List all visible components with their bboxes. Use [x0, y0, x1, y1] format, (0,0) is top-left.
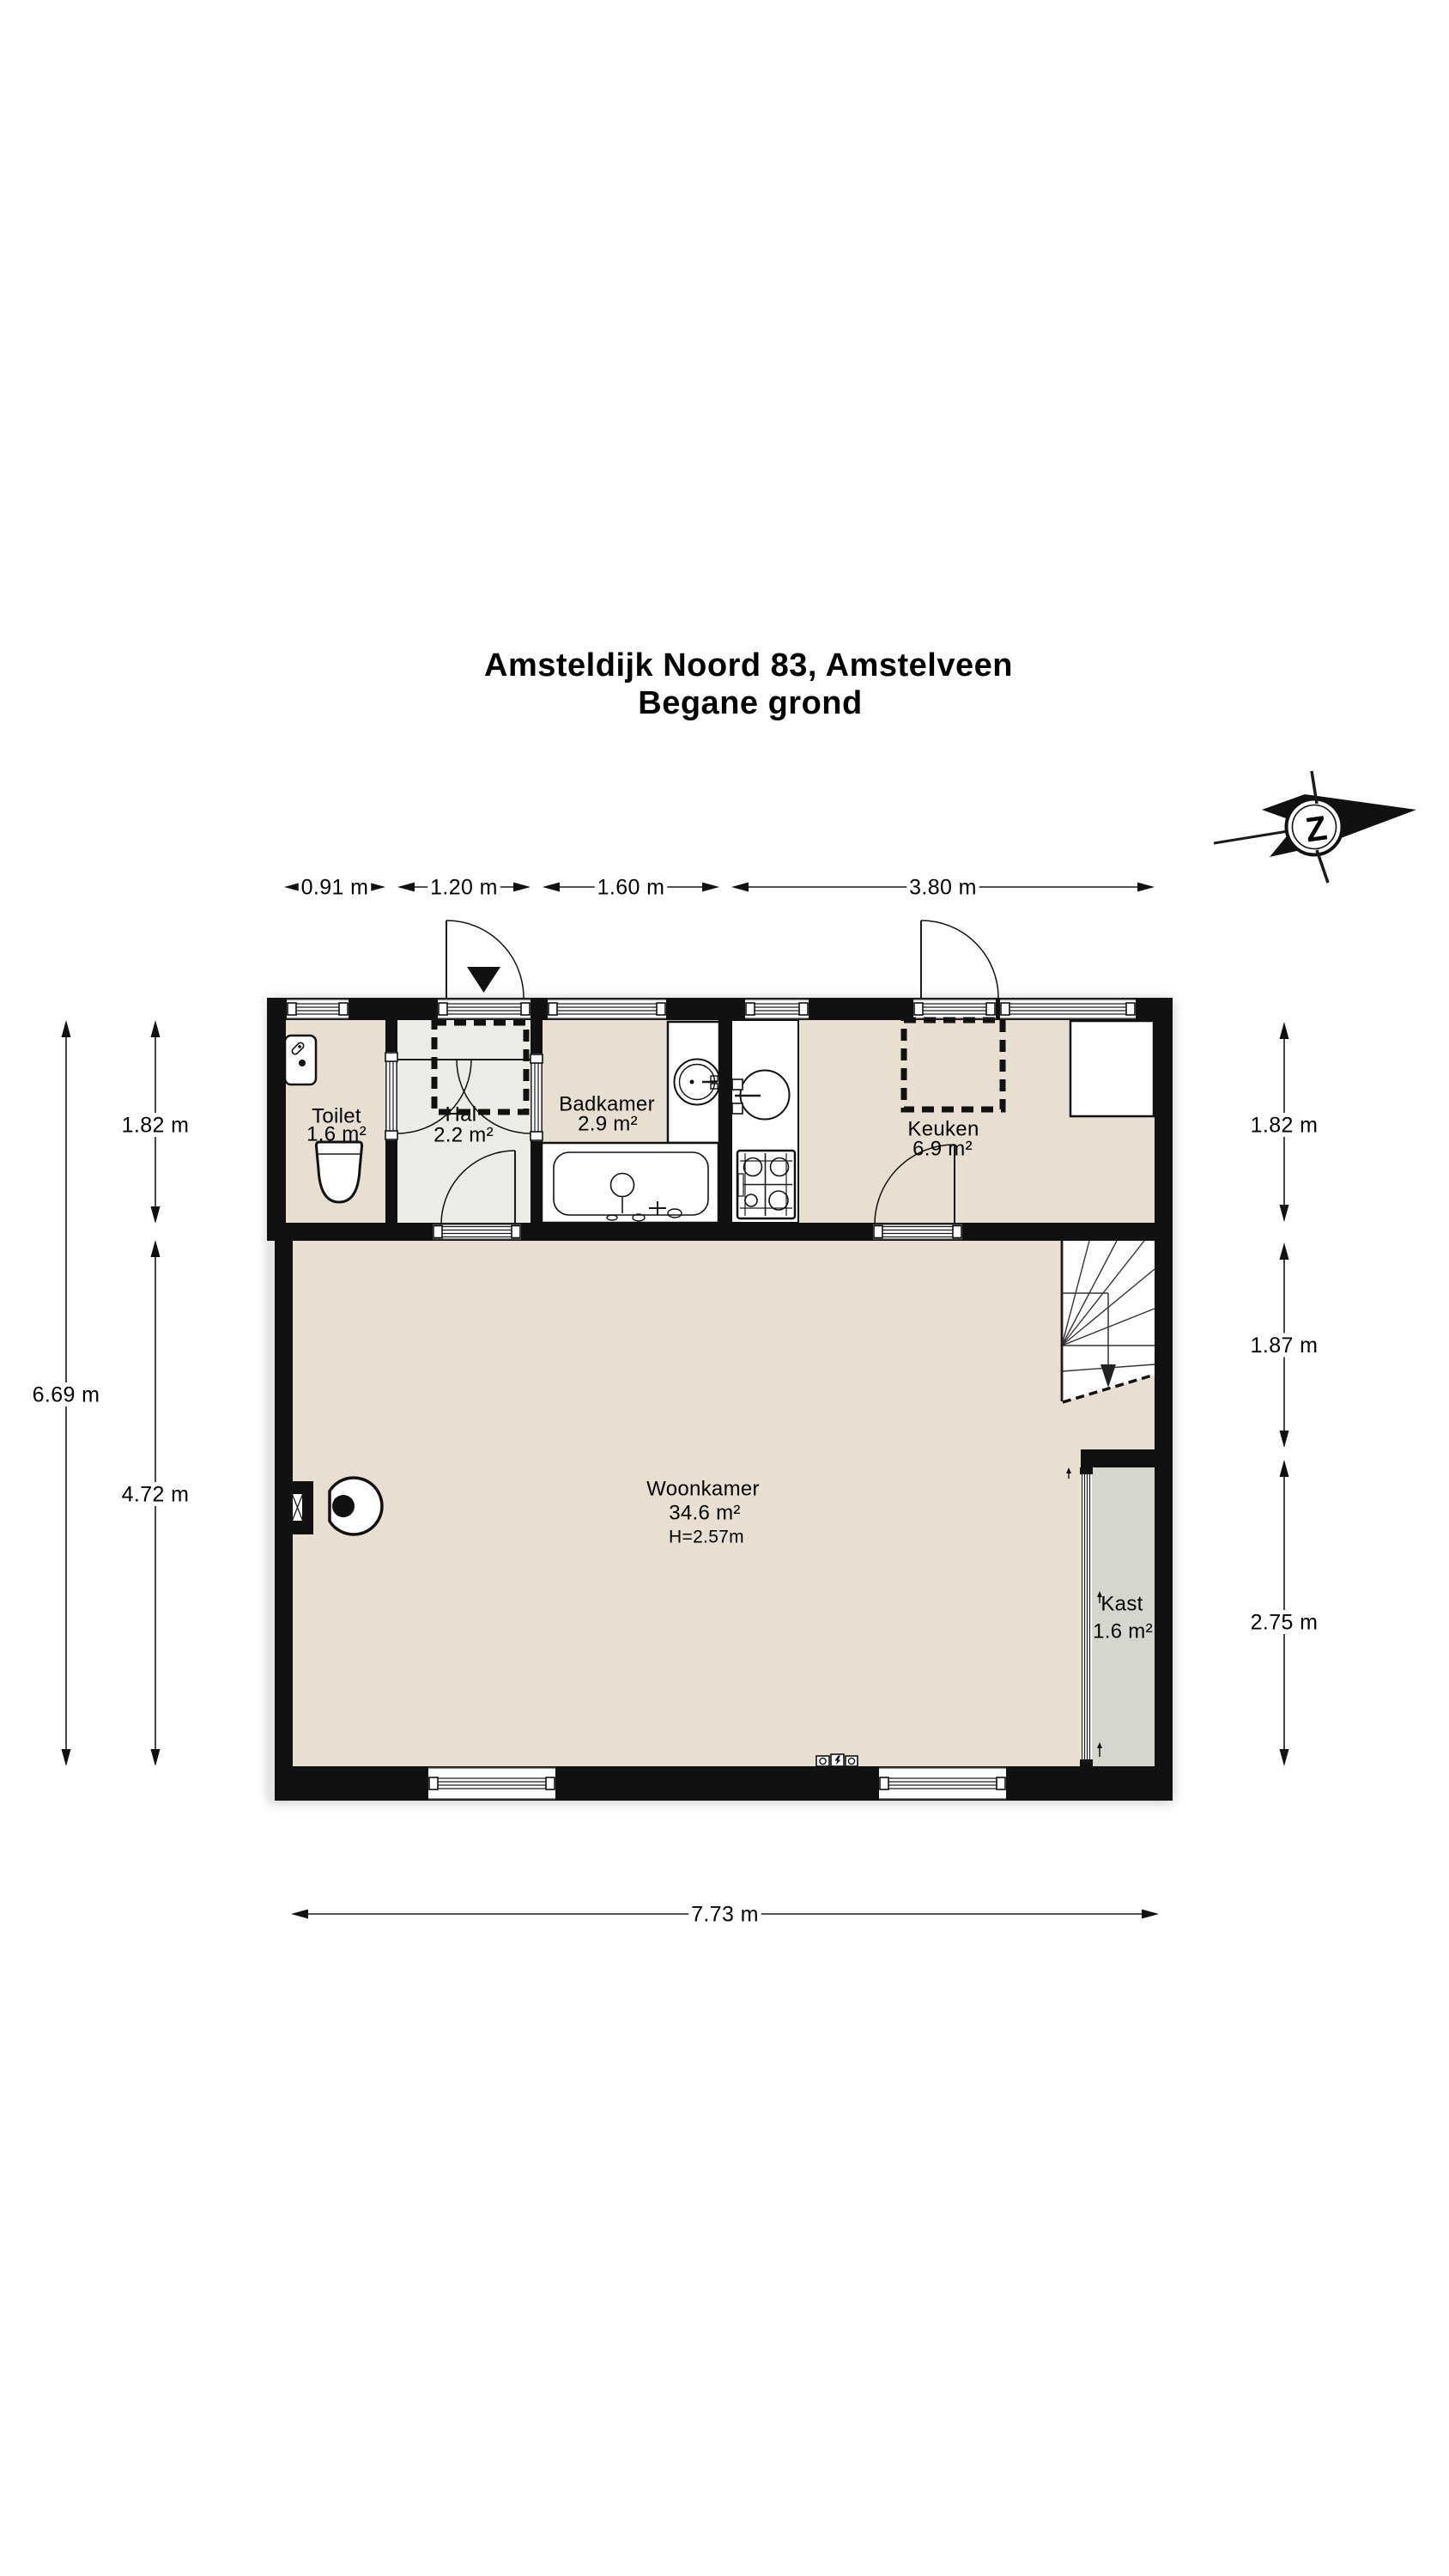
- svg-text:1.82 m: 1.82 m: [1251, 1114, 1319, 1138]
- svg-text:6.9 m²: 6.9 m²: [912, 1138, 973, 1161]
- svg-text:1.20 m: 1.20 m: [430, 876, 498, 900]
- svg-text:4.72 m: 4.72 m: [122, 1483, 190, 1507]
- svg-text:Begane grond: Begane grond: [638, 685, 862, 721]
- svg-text:Kast: Kast: [1100, 1593, 1143, 1616]
- svg-text:6.69 m: 6.69 m: [33, 1383, 100, 1407]
- svg-text:34.6 m²: 34.6 m²: [669, 1502, 740, 1525]
- svg-text:1.82 m: 1.82 m: [122, 1114, 190, 1138]
- svg-text:1.6 m²: 1.6 m²: [306, 1123, 367, 1146]
- svg-text:1.6 m²: 1.6 m²: [1093, 1620, 1153, 1643]
- svg-text:2.75 m: 2.75 m: [1251, 1611, 1319, 1635]
- svg-text:7.73 m: 7.73 m: [691, 1903, 759, 1927]
- svg-text:2.2 m²: 2.2 m²: [433, 1124, 494, 1147]
- svg-text:Amsteldijk Noord 83, Amstelvee: Amsteldijk Noord 83, Amstelveen: [484, 647, 1013, 683]
- svg-text:Woonkamer: Woonkamer: [646, 1478, 760, 1501]
- svg-text:3.80 m: 3.80 m: [909, 876, 977, 900]
- svg-text:H=2.57m: H=2.57m: [669, 1528, 744, 1547]
- svg-text:2.9 m²: 2.9 m²: [578, 1113, 638, 1136]
- svg-text:0.91 m: 0.91 m: [301, 876, 369, 900]
- svg-text:1.87 m: 1.87 m: [1251, 1334, 1319, 1358]
- svg-text:1.60 m: 1.60 m: [597, 876, 665, 900]
